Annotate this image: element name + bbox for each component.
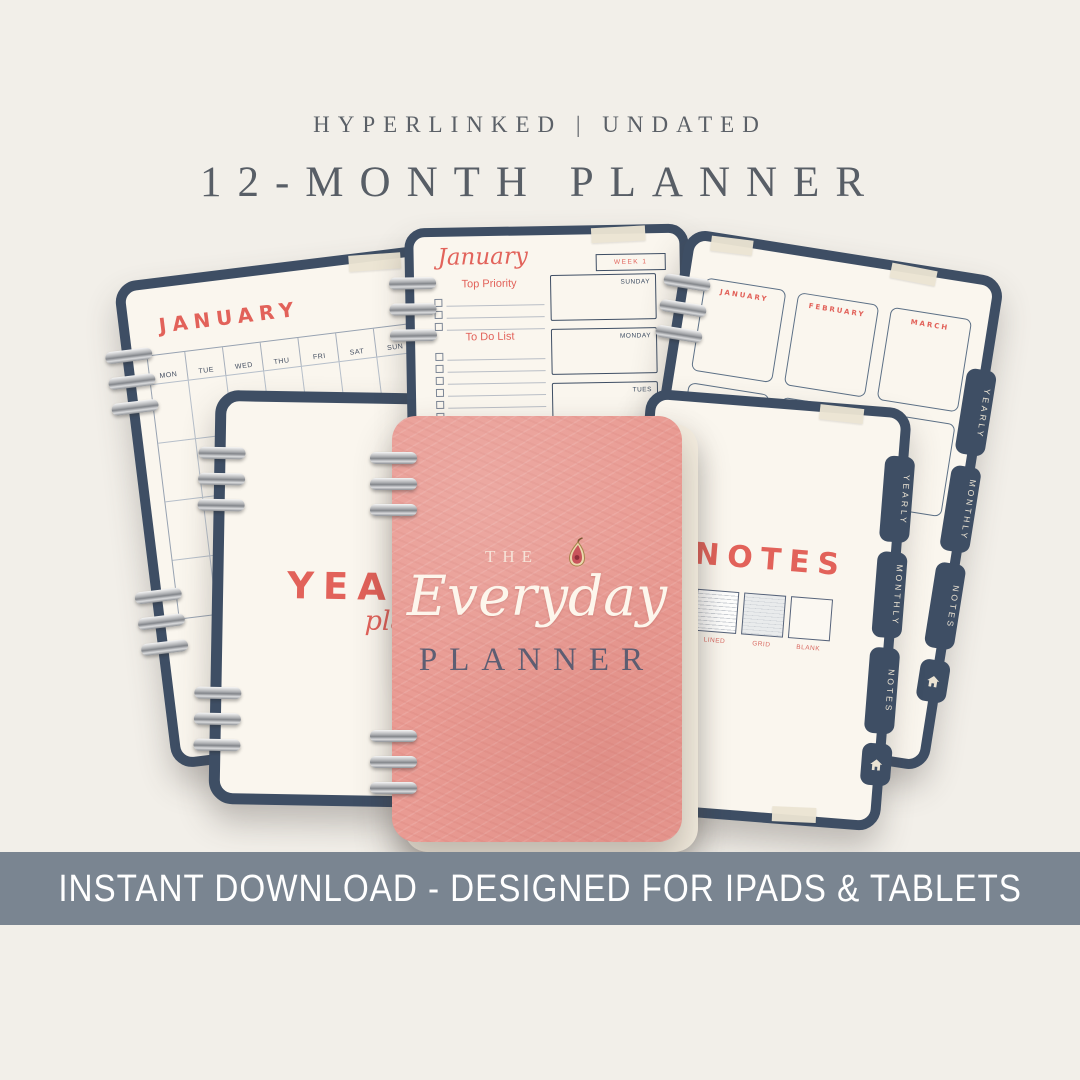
binder-ring: [111, 399, 159, 417]
binder-ring: [105, 347, 153, 365]
month-box: FEBRUARY: [784, 292, 880, 398]
paper-style-swatches: LINED GRID BLANK: [693, 589, 833, 654]
washi-tape: [890, 263, 938, 287]
banner-text: INSTANT DOWNLOAD - DESIGNED FOR IPADS & …: [58, 867, 1021, 910]
binder-ring: [198, 499, 245, 512]
bottom-banner: INSTANT DOWNLOAD - DESIGNED FOR IPADS & …: [0, 852, 1080, 925]
page-title: 12-MONTH PLANNER: [0, 158, 1080, 207]
weekday-boxes: SUNDAY MONDAY TUES: [550, 273, 659, 437]
cover-caps-title: PLANNER: [392, 642, 682, 679]
month-box: MARCH: [877, 307, 973, 413]
binder-ring: [198, 473, 245, 486]
washi-tape: [710, 236, 754, 256]
binder-ring: [370, 782, 417, 794]
binder-ring: [370, 730, 417, 742]
washi-tape: [348, 252, 401, 272]
binder-ring: [370, 504, 417, 516]
home-icon: [870, 758, 883, 770]
fig-icon: [565, 537, 589, 567]
day-box: MONDAY: [551, 327, 658, 375]
binder-ring: [141, 639, 189, 657]
washi-tape: [591, 225, 646, 243]
binder-ring: [389, 277, 436, 290]
binder-ring: [389, 303, 436, 316]
binder-ring: [108, 373, 156, 391]
binder-ring: [370, 478, 417, 490]
binder-ring: [193, 739, 240, 752]
tab-notes: NOTES: [924, 561, 967, 651]
binder-ring: [198, 447, 245, 460]
top-priority-heading: Top Priority: [434, 277, 544, 291]
planner-front-cover: THE Everyday PLANNER: [392, 416, 682, 842]
binder-ring: [194, 713, 241, 726]
week-number-box: WEEK 1: [596, 253, 666, 271]
binder-ring: [134, 587, 182, 605]
binder-ring: [390, 329, 437, 342]
top-priority-list: [434, 293, 545, 331]
swatch-lined: LINED: [693, 589, 739, 646]
swatch-grid: GRID: [740, 592, 786, 649]
binder-ring: [194, 687, 241, 700]
tab-home: [915, 658, 951, 704]
header-tagline: HYPERLINKED | UNDATED: [0, 112, 1080, 138]
binder-ring: [370, 452, 417, 464]
washi-tape: [819, 404, 864, 424]
product-mockup-scene: HYPERLINKED | UNDATED 12-MONTH PLANNER J…: [0, 0, 1080, 1080]
cover-script-title: Everyday: [392, 564, 682, 628]
weekly-month-script: January: [437, 243, 528, 271]
binder-ring: [370, 756, 417, 768]
binder-ring: [137, 613, 185, 631]
notes-title: NOTES: [693, 536, 848, 583]
tab-home: [860, 742, 893, 786]
todo-heading: To Do List: [435, 330, 545, 344]
home-icon: [926, 675, 940, 688]
planner-cover-group: THE Everyday PLANNER: [392, 416, 688, 848]
day-box: SUNDAY: [550, 273, 657, 321]
washi-tape: [772, 806, 817, 823]
swatch-blank: BLANK: [787, 596, 833, 653]
month-box: JANUARY: [691, 277, 787, 383]
